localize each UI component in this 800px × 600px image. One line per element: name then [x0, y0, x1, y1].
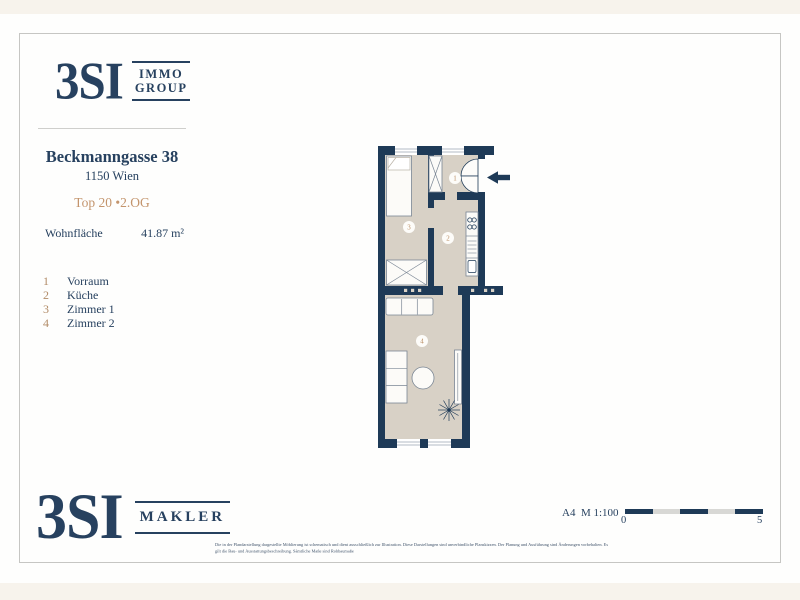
room-badge-zimmer2: 4	[420, 337, 424, 345]
room-badge-kueche: 2	[446, 234, 450, 242]
scale-bar-segment	[653, 509, 681, 514]
legend-label: Zimmer 1	[67, 302, 115, 316]
disclaimer-line-1: Die in der Plandarstellung dargestellte …	[215, 542, 656, 548]
scale-bar-segment	[708, 509, 736, 514]
brand-logo-3si: 3SI	[55, 54, 123, 107]
living-area-label: Wohnfläche	[45, 226, 103, 241]
living-area-value: 41.87 m²	[141, 226, 184, 241]
scale-bar-segment	[625, 509, 653, 514]
property-address: Beckmanngasse 38	[30, 147, 194, 167]
wardrobe-zimmer1	[387, 260, 427, 285]
disclaimer-line-2: gilt die Bau- und Ausstattungsbeschreibu…	[215, 548, 656, 554]
room-legend: 1 Vorraum 2 Küche 3 Zimmer 1 4 Zimmer 2	[43, 274, 115, 330]
sofa	[386, 298, 433, 315]
room-badge-zimmer1: 3	[407, 223, 411, 231]
room-badge-vorraum: 1	[453, 174, 457, 182]
legend-number: 4	[43, 316, 67, 330]
entrance-arrow-icon	[487, 171, 510, 184]
disclaimer-text: Die in der Plandarstellung dargestellte …	[215, 542, 656, 554]
legend-number: 2	[43, 288, 67, 302]
kitchen-counter	[466, 212, 478, 276]
brand-logo-immogroup: IMMO GROUP	[132, 61, 191, 101]
scale-bar	[625, 509, 763, 514]
floorplan-page: 3SI IMMO GROUP Beckmanngasse 38 1150 Wie…	[0, 0, 800, 600]
header-divider	[38, 128, 186, 129]
brand-logo-top: 3SI IMMO GROUP	[55, 56, 190, 105]
brand-logo-bottom: 3SI MAKLER	[36, 486, 230, 548]
floorplan-drawing: 1 2 3 4	[370, 146, 520, 448]
bed	[387, 156, 412, 216]
shelf-radiator	[455, 350, 462, 404]
sink-icon	[468, 261, 476, 273]
brand-logo-group-line: GROUP	[135, 81, 188, 95]
brand-logo-immo-line: IMMO	[135, 67, 188, 81]
legend-label: Vorraum	[67, 274, 109, 288]
legend-item-kueche: 2 Küche	[43, 288, 115, 302]
round-table	[412, 367, 434, 389]
wardrobe-vorraum	[429, 156, 442, 192]
legend-label: Zimmer 2	[67, 316, 115, 330]
scale-bar-segment	[680, 509, 708, 514]
legend-number: 1	[43, 274, 67, 288]
scale-format-label: A4 M 1:100	[562, 507, 619, 519]
scale-end-label: 5	[757, 515, 762, 526]
legend-item-vorraum: 1 Vorraum	[43, 274, 115, 288]
legend-number: 3	[43, 302, 67, 316]
brand-logo-3si-makler: 3SI	[36, 484, 123, 549]
legend-item-zimmer2: 4 Zimmer 2	[43, 316, 115, 330]
property-city: 1150 Wien	[30, 169, 194, 184]
sideboard	[386, 351, 407, 403]
legend-item-zimmer1: 3 Zimmer 1	[43, 302, 115, 316]
living-area-row: Wohnfläche 41.87 m²	[45, 226, 184, 241]
property-unit-floor: Top 20 •2.OG	[30, 195, 194, 211]
scale-bar-segment	[735, 509, 763, 514]
brand-logo-makler-label: MAKLER	[135, 501, 231, 534]
scale-start-label: 0	[621, 515, 626, 526]
legend-label: Küche	[67, 288, 98, 302]
